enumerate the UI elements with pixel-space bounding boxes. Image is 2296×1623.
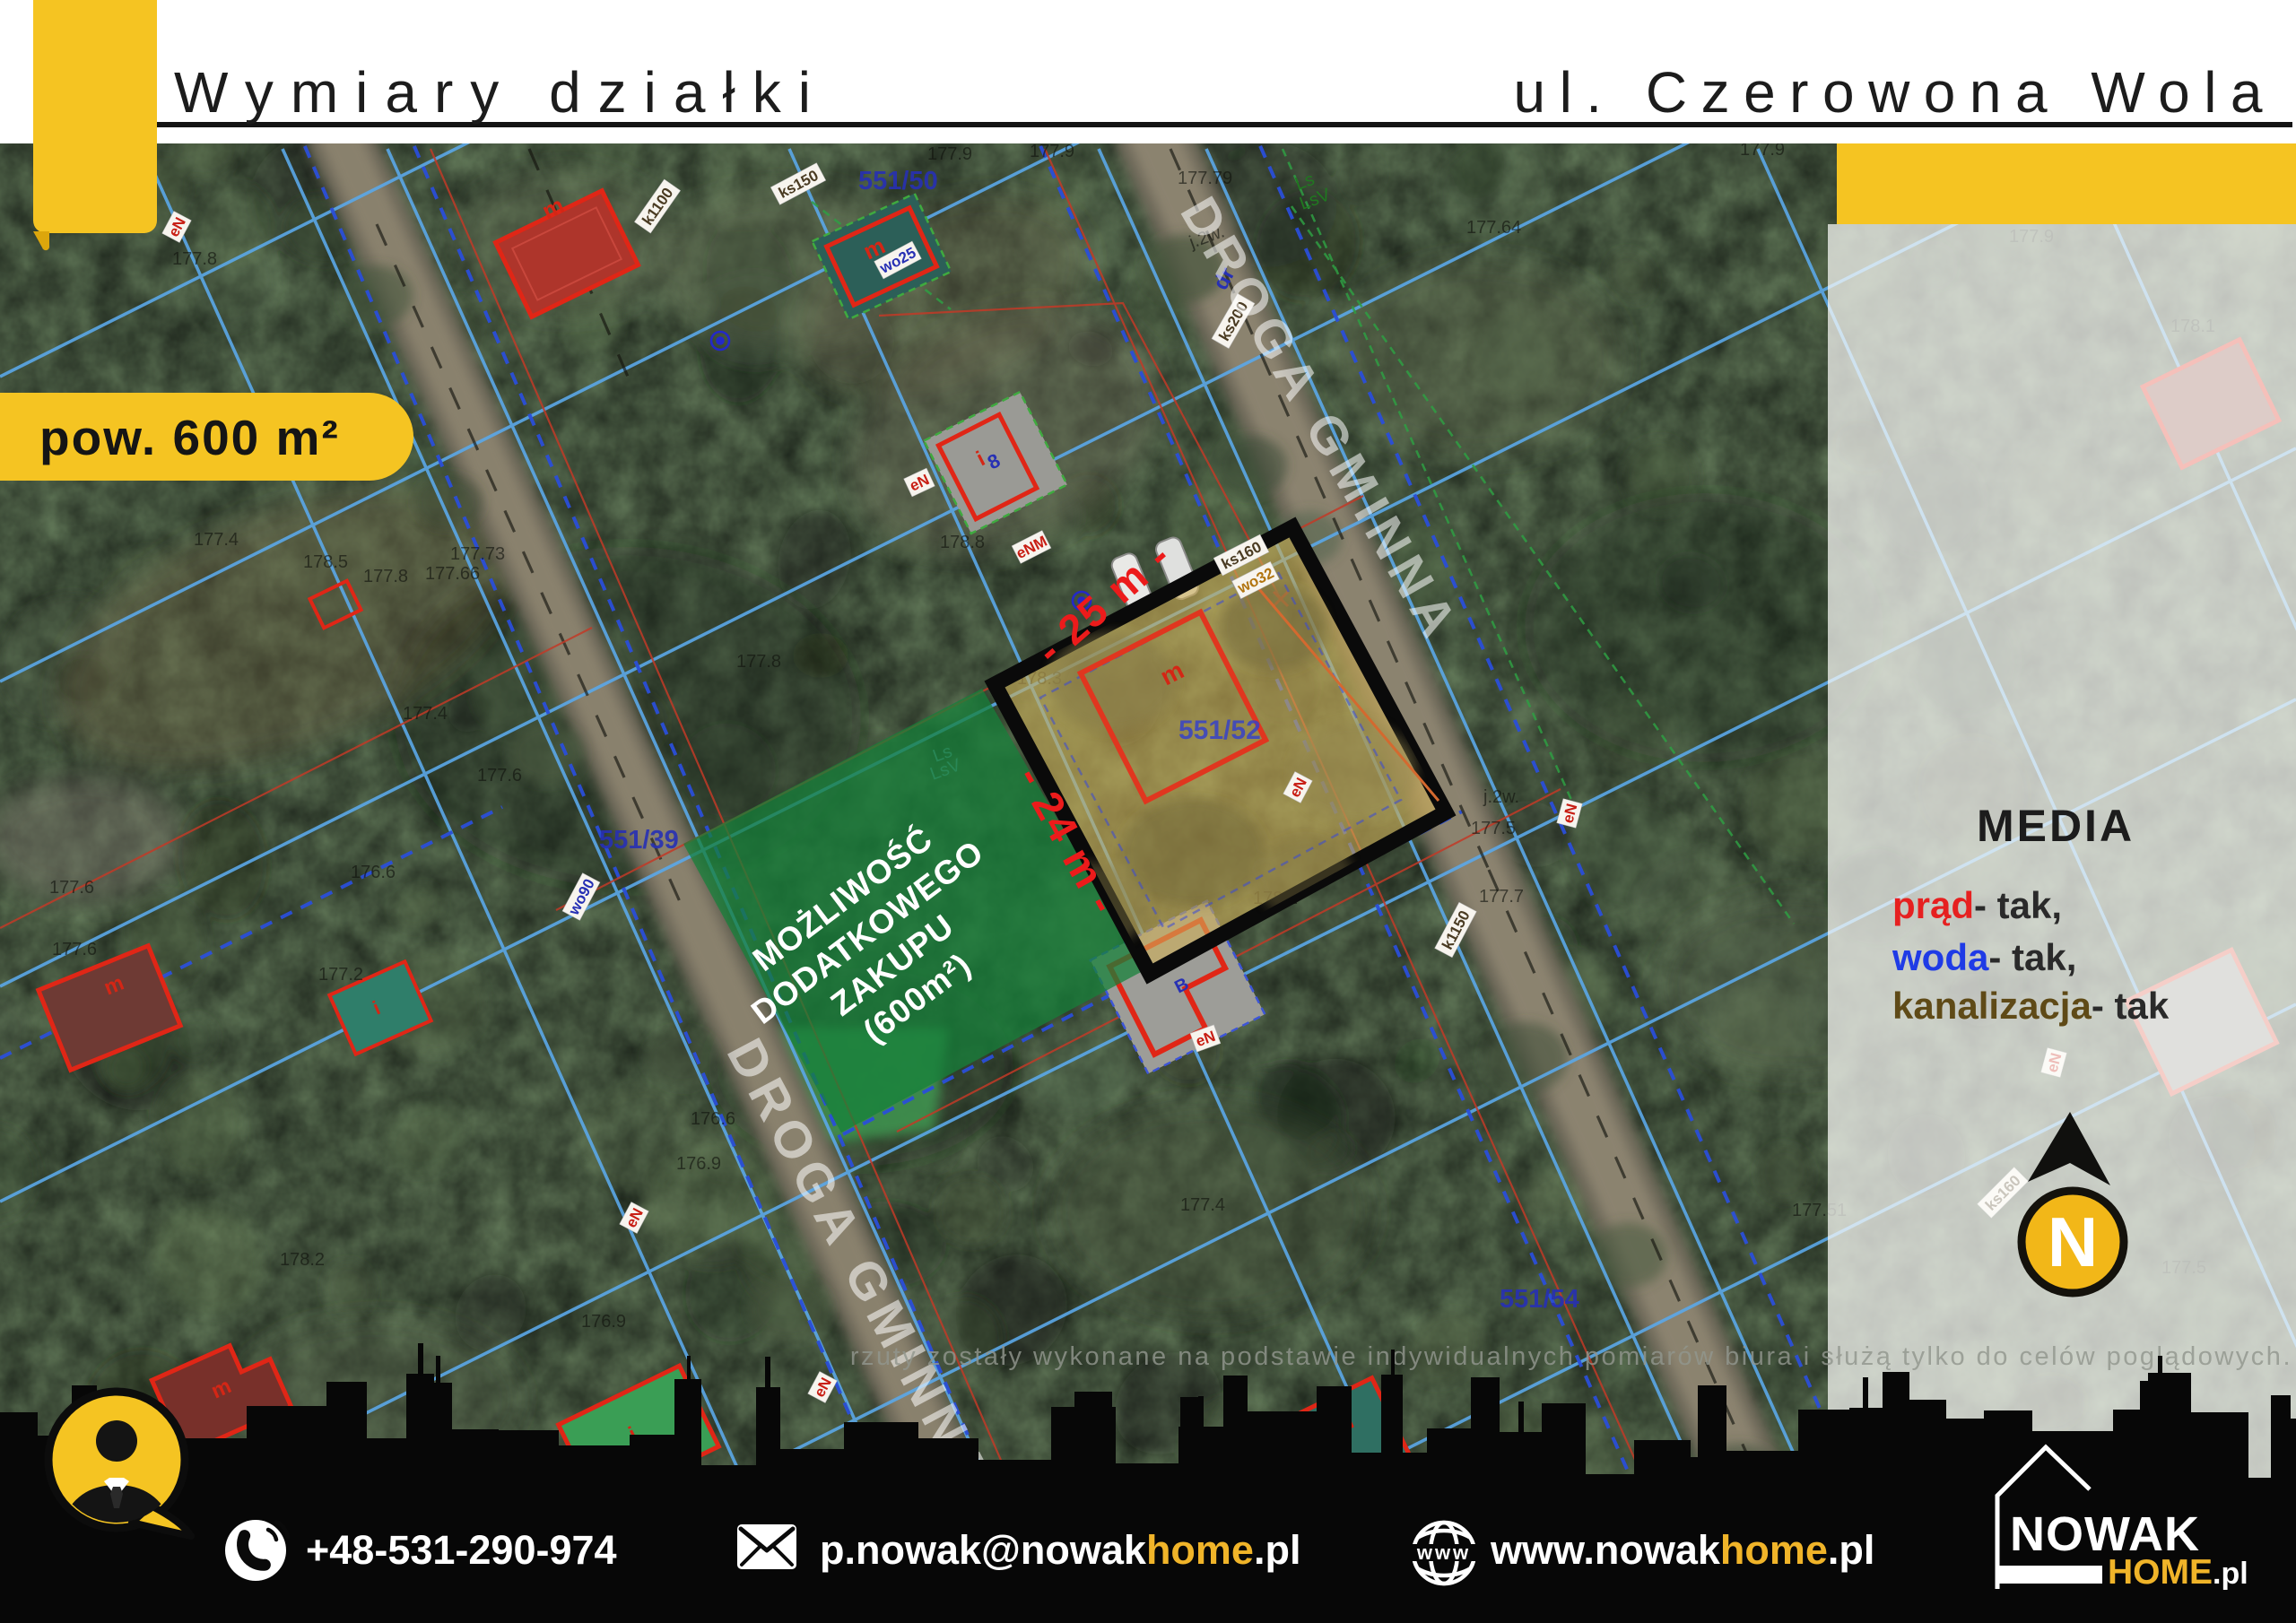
svg-text:HOME.pl: HOME.pl xyxy=(2108,1553,2248,1592)
svg-text:j.2w.: j.2w. xyxy=(1483,787,1519,807)
svg-text:177.4: 177.4 xyxy=(1180,1195,1225,1215)
svg-text:kanalizacja- tak: kanalizacja- tak xyxy=(1892,985,2170,1027)
svg-text:176.9: 176.9 xyxy=(581,1312,626,1332)
svg-text:177.64: 177.64 xyxy=(1466,218,1521,238)
svg-text:177.8: 177.8 xyxy=(736,652,781,672)
svg-text:178.5: 178.5 xyxy=(303,552,348,572)
svg-text:177.9: 177.9 xyxy=(1030,142,1074,161)
svg-text:p.nowak@nowakhome.pl: p.nowak@nowakhome.pl xyxy=(820,1527,1300,1573)
svg-text:551/50: 551/50 xyxy=(858,167,938,195)
svg-text:178.2: 178.2 xyxy=(280,1250,325,1270)
svg-text:177.4: 177.4 xyxy=(194,530,239,550)
svg-text:176.6: 176.6 xyxy=(691,1109,735,1129)
svg-text:551/39: 551/39 xyxy=(599,826,679,855)
svg-text:177.6: 177.6 xyxy=(477,766,522,785)
svg-text:177.5: 177.5 xyxy=(1471,819,1516,838)
svg-text:177.79: 177.79 xyxy=(1178,169,1232,188)
svg-text:+48-531-290-974: +48-531-290-974 xyxy=(306,1527,617,1573)
svg-text:177.6: 177.6 xyxy=(49,878,94,898)
svg-text:177.9: 177.9 xyxy=(927,144,972,164)
svg-text:rzuty zostały wykonane na pods: rzuty zostały wykonane na podstawie indy… xyxy=(850,1342,2292,1371)
svg-text:551/54: 551/54 xyxy=(1500,1285,1579,1314)
svg-text:177.7: 177.7 xyxy=(1479,887,1524,907)
svg-text:pow. 600 m²: pow. 600 m² xyxy=(39,410,340,465)
svg-text:177.8: 177.8 xyxy=(363,567,408,586)
svg-text:N: N xyxy=(2048,1202,2098,1281)
svg-text:MEDIA: MEDIA xyxy=(1977,801,2135,851)
svg-text:177.73: 177.73 xyxy=(450,544,505,564)
svg-text:ul. Czerowona Wola: ul. Czerowona Wola xyxy=(1513,60,2276,125)
svg-text:www: www xyxy=(1416,1541,1471,1564)
svg-text:177.4: 177.4 xyxy=(403,704,448,724)
svg-text:551/52: 551/52 xyxy=(1178,716,1261,745)
svg-text:prąd- tak,: prąd- tak, xyxy=(1892,884,2062,926)
svg-text:176.6: 176.6 xyxy=(351,863,396,882)
svg-text:177.2: 177.2 xyxy=(318,965,363,985)
svg-text:176.9: 176.9 xyxy=(676,1154,721,1174)
svg-text:Wymiary działki: Wymiary działki xyxy=(174,60,828,125)
svg-text:177.8: 177.8 xyxy=(172,249,217,269)
svg-text:177.6: 177.6 xyxy=(52,940,97,959)
svg-text:178.8: 178.8 xyxy=(940,533,985,552)
svg-text:www.nowakhome.pl: www.nowakhome.pl xyxy=(1490,1527,1874,1573)
svg-text:woda- tak,: woda- tak, xyxy=(1892,936,2076,978)
svg-text:177.66: 177.66 xyxy=(425,564,480,584)
